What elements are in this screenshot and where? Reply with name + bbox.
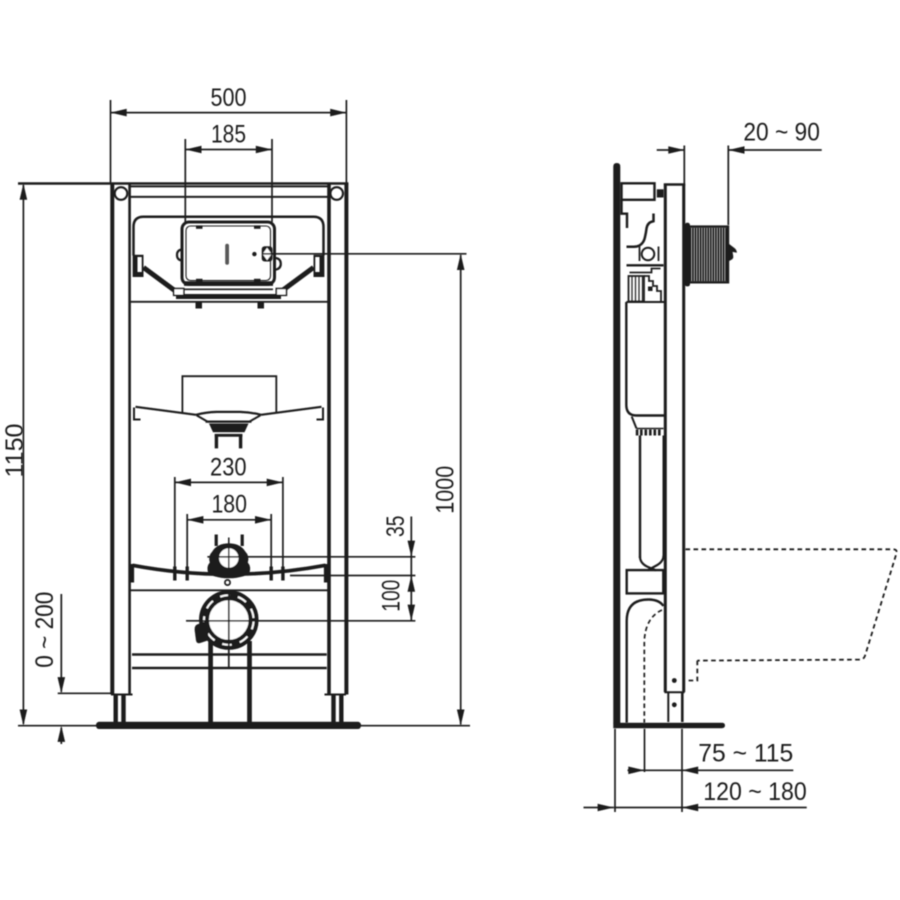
svg-text:1000: 1000 xyxy=(432,466,460,514)
svg-text:0 ~ 200: 0 ~ 200 xyxy=(31,592,59,668)
svg-text:35: 35 xyxy=(382,516,410,538)
svg-text:500: 500 xyxy=(211,84,247,112)
svg-text:185: 185 xyxy=(211,121,246,149)
svg-text:20 ~ 90: 20 ~ 90 xyxy=(743,119,820,147)
svg-text:230: 230 xyxy=(210,453,247,481)
svg-text:100: 100 xyxy=(378,580,406,612)
svg-text:1150: 1150 xyxy=(1,424,29,478)
svg-text:75 ~ 115: 75 ~ 115 xyxy=(698,740,793,768)
svg-text:180: 180 xyxy=(211,490,247,518)
svg-text:120 ~ 180: 120 ~ 180 xyxy=(703,778,807,806)
